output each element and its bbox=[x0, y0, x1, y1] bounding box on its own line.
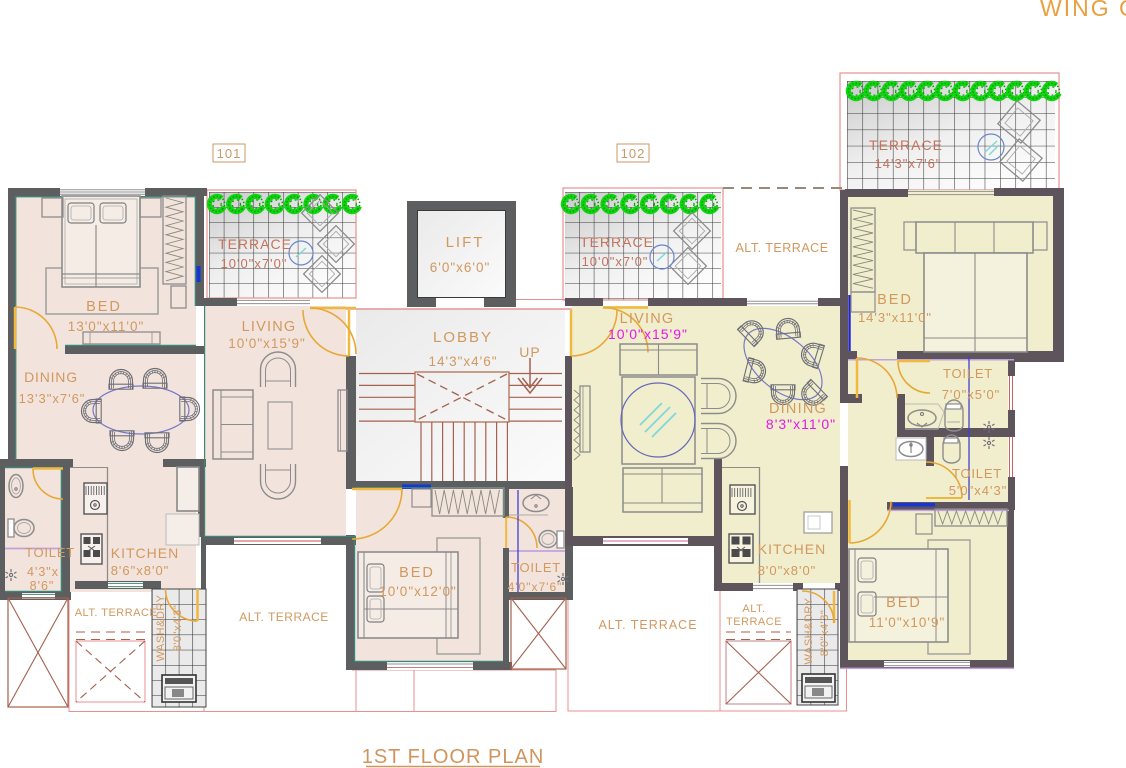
svg-text:WASH&DRY: WASH&DRY bbox=[155, 594, 167, 661]
svg-text:BED: BED bbox=[877, 292, 913, 308]
svg-text:BED: BED bbox=[886, 595, 922, 611]
svg-text:LIFT: LIFT bbox=[446, 234, 485, 251]
svg-text:ALT.: ALT. bbox=[742, 603, 765, 615]
svg-text:4'0"x7'6": 4'0"x7'6" bbox=[508, 580, 563, 594]
svg-text:TERRACE: TERRACE bbox=[580, 234, 654, 250]
svg-text:ALT. TERRACE: ALT. TERRACE bbox=[75, 607, 158, 619]
svg-text:DINING: DINING bbox=[24, 369, 78, 385]
svg-text:TERRACE: TERRACE bbox=[218, 236, 292, 252]
svg-text:TERRACE: TERRACE bbox=[869, 137, 943, 153]
svg-text:LIVING: LIVING bbox=[242, 319, 297, 335]
svg-text:KITCHEN: KITCHEN bbox=[111, 545, 179, 561]
svg-text:11'0"x10'9": 11'0"x10'9" bbox=[869, 615, 946, 630]
svg-text:6'0"x6'0": 6'0"x6'0" bbox=[430, 260, 491, 275]
svg-text:LIVING: LIVING bbox=[620, 311, 675, 327]
svg-text:8'0"x4'3": 8'0"x4'3" bbox=[172, 605, 184, 651]
svg-text:TOILET: TOILET bbox=[511, 560, 561, 575]
svg-text:14'3"x7'6": 14'3"x7'6" bbox=[875, 156, 942, 171]
svg-text:10'0"x15'9": 10'0"x15'9" bbox=[608, 326, 688, 342]
svg-text:4'3"x: 4'3"x bbox=[27, 565, 59, 579]
svg-text:BED: BED bbox=[399, 565, 435, 581]
svg-text:KITCHEN: KITCHEN bbox=[758, 541, 826, 557]
svg-text:TERRACE: TERRACE bbox=[726, 616, 782, 628]
svg-text:101: 101 bbox=[217, 146, 242, 161]
svg-text:13'3"x7'6": 13'3"x7'6" bbox=[19, 391, 86, 406]
svg-text:TOILET: TOILET bbox=[943, 366, 993, 381]
svg-text:14'3"x11'0": 14'3"x11'0" bbox=[858, 310, 932, 325]
svg-text:8'0"x4'3": 8'0"x4'3" bbox=[819, 610, 831, 656]
svg-text:14'3"x4'6": 14'3"x4'6" bbox=[428, 354, 497, 369]
svg-text:10'0"x15'9": 10'0"x15'9" bbox=[228, 336, 306, 351]
svg-text:BED: BED bbox=[86, 299, 122, 315]
svg-text:10'0"x7'0": 10'0"x7'0" bbox=[582, 254, 649, 269]
svg-text:7'0"x5'0": 7'0"x5'0" bbox=[942, 387, 1001, 402]
svg-text:DINING: DINING bbox=[769, 401, 827, 417]
svg-text:UP: UP bbox=[519, 344, 540, 360]
svg-text:ALT. TERRACE: ALT. TERRACE bbox=[598, 618, 697, 632]
svg-text:8'3"x11'0": 8'3"x11'0" bbox=[766, 416, 836, 432]
svg-text:10'0"x12'0": 10'0"x12'0" bbox=[379, 584, 457, 599]
svg-text:TOILET: TOILET bbox=[952, 466, 1002, 481]
svg-text:ALT. TERRACE: ALT. TERRACE bbox=[239, 610, 329, 624]
svg-text:8'6": 8'6" bbox=[30, 579, 55, 593]
svg-text:102: 102 bbox=[621, 146, 646, 161]
svg-text:8'6"x8'0": 8'6"x8'0" bbox=[111, 563, 170, 578]
svg-text:WING G: WING G bbox=[1040, 0, 1126, 21]
svg-text:WASH&DRY: WASH&DRY bbox=[803, 597, 815, 664]
svg-text:10'0"x7'0": 10'0"x7'0" bbox=[221, 256, 288, 271]
svg-text:8'0"x8'0": 8'0"x8'0" bbox=[758, 563, 817, 578]
svg-text:13'0"x11'0": 13'0"x11'0" bbox=[68, 319, 145, 334]
svg-text:LOBBY: LOBBY bbox=[433, 329, 493, 346]
svg-text:ALT. TERRACE: ALT. TERRACE bbox=[735, 241, 828, 255]
svg-text:TOILET: TOILET bbox=[25, 545, 75, 560]
svg-text:1ST FLOOR PLAN: 1ST FLOOR PLAN bbox=[362, 746, 545, 768]
svg-text:5'0"x4'3": 5'0"x4'3" bbox=[949, 483, 1008, 498]
